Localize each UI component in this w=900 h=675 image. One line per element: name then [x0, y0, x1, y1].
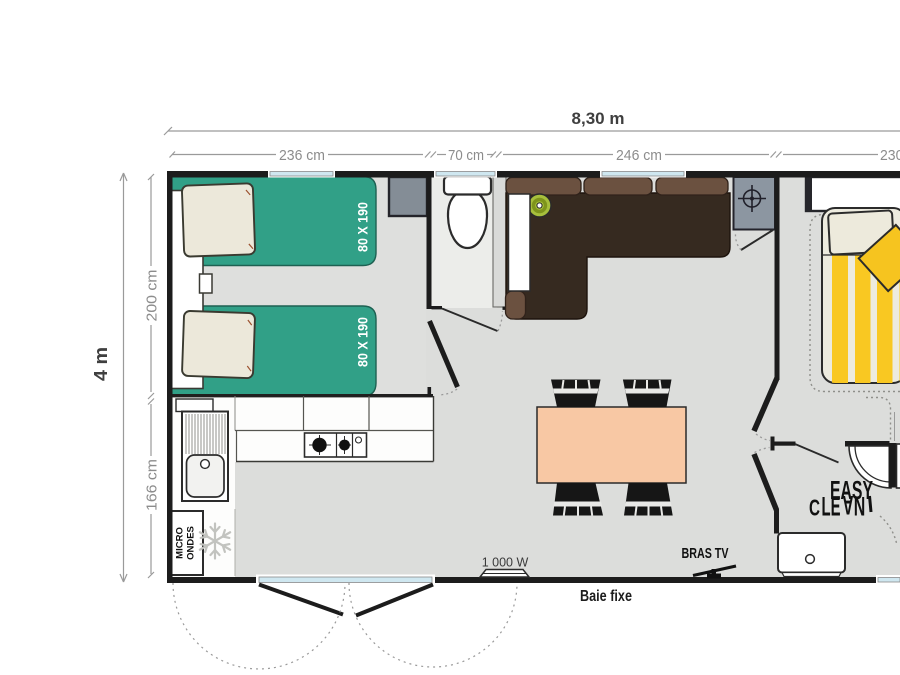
svg-text:LE: LE: [822, 492, 841, 522]
svg-text:N: N: [854, 492, 866, 522]
svg-text:166 cm: 166 cm: [144, 459, 161, 511]
svg-text:Baie fixe: Baie fixe: [580, 588, 632, 605]
svg-text:236 cm: 236 cm: [279, 147, 325, 164]
svg-text:80 X 190: 80 X 190: [356, 202, 371, 252]
svg-text:70 cm: 70 cm: [448, 147, 484, 164]
svg-text:80 X 190: 80 X 190: [356, 317, 371, 367]
svg-text:4 m: 4 m: [91, 347, 111, 381]
svg-text:BRAS TV: BRAS TV: [682, 546, 729, 562]
svg-text:230 cm: 230 cm: [880, 147, 900, 164]
svg-text:200 cm: 200 cm: [144, 270, 161, 322]
svg-text:A: A: [843, 490, 854, 520]
svg-text:C: C: [809, 495, 820, 521]
svg-text:246 cm: 246 cm: [616, 147, 662, 164]
svg-text:MICRO: MICRO: [175, 527, 186, 559]
svg-text:ONDES: ONDES: [186, 526, 197, 560]
svg-text:8,30 m: 8,30 m: [572, 109, 625, 128]
svg-text:1 000 W: 1 000 W: [482, 556, 529, 570]
